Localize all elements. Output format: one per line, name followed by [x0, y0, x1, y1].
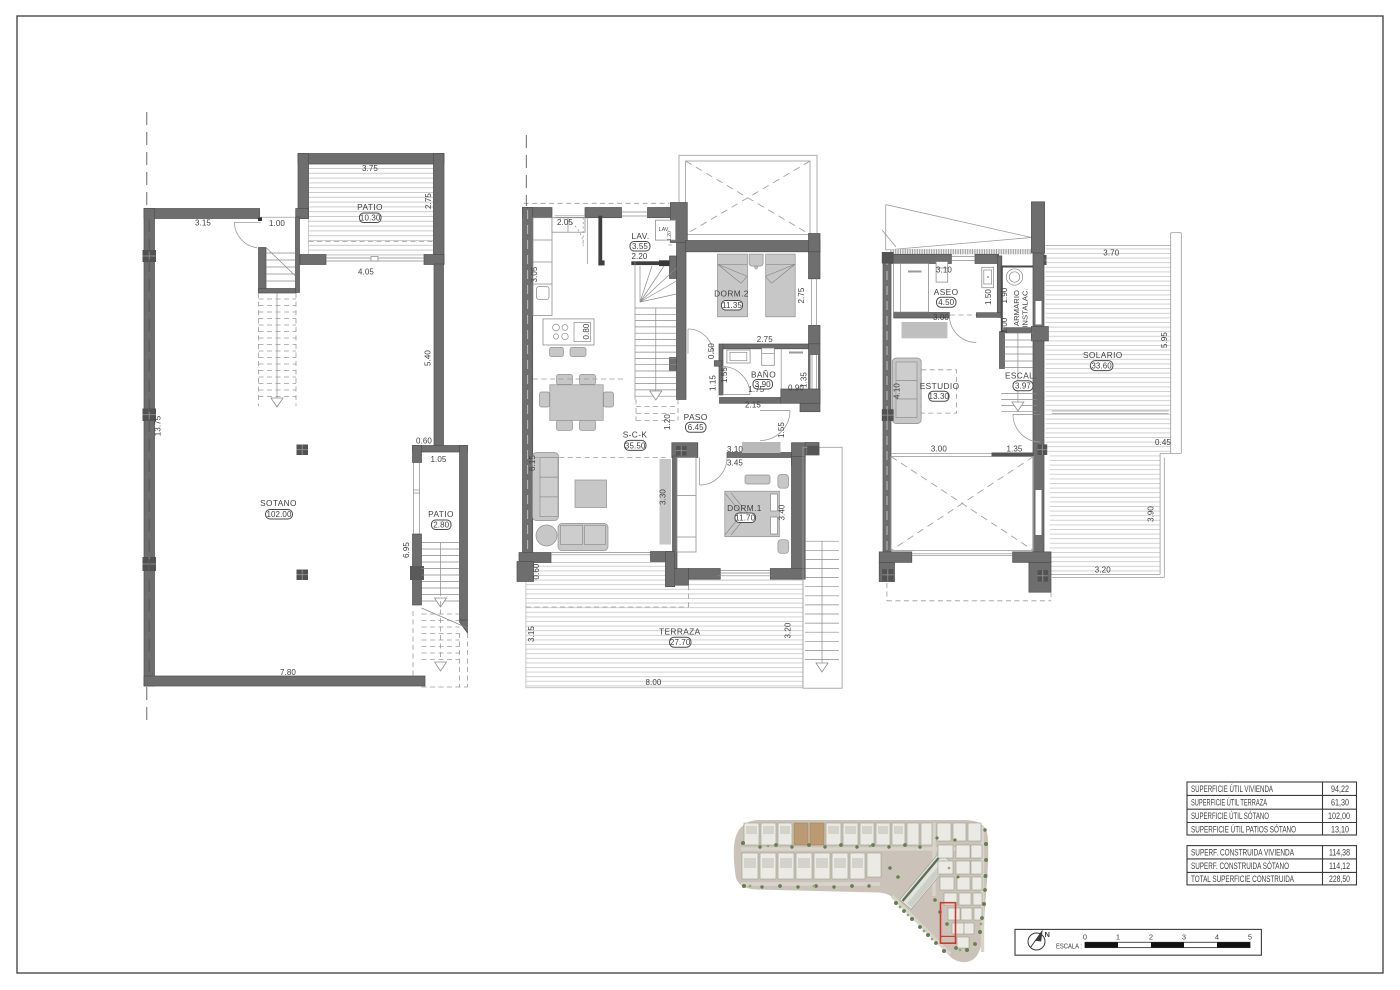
svg-text:0.45: 0.45 [1155, 438, 1171, 447]
svg-text:S-C-K: S-C-K [623, 430, 648, 440]
svg-text:3.45: 3.45 [727, 459, 743, 468]
svg-text:PASO: PASO [684, 412, 708, 422]
svg-text:PATIO: PATIO [428, 509, 454, 519]
svg-text:INSTALAC.: INSTALAC. [1021, 288, 1030, 328]
svg-text:61,30: 61,30 [1331, 798, 1349, 808]
svg-text:0: 0 [1083, 933, 1087, 942]
svg-text:3.40: 3.40 [778, 504, 787, 520]
svg-text:3.00: 3.00 [933, 313, 949, 322]
svg-text:4.50: 4.50 [938, 298, 954, 307]
svg-text:2.20: 2.20 [632, 252, 648, 261]
svg-text:5.40: 5.40 [424, 350, 433, 366]
svg-text:11.35: 11.35 [722, 301, 742, 310]
svg-text:3.75: 3.75 [362, 164, 378, 173]
svg-text:1.50: 1.50 [984, 289, 993, 305]
svg-text:ESTUDIO: ESTUDIO [920, 381, 960, 391]
svg-text:SUPERF. CONSTRUIDA SÓTANO: SUPERF. CONSTRUIDA SÓTANO [1191, 861, 1289, 871]
svg-text:1.75: 1.75 [748, 385, 764, 394]
svg-text:4.05: 4.05 [358, 268, 374, 277]
svg-text:13.30: 13.30 [929, 392, 950, 401]
svg-text:PATIO: PATIO [357, 202, 383, 212]
svg-text:0.80: 0.80 [582, 323, 591, 339]
svg-text:1.20: 1.20 [663, 414, 672, 430]
svg-text:ESCALA :: ESCALA : [1056, 942, 1082, 951]
svg-text:TERRAZA: TERRAZA [659, 627, 701, 637]
svg-text:ASEO: ASEO [934, 287, 959, 297]
svg-text:3.05: 3.05 [530, 266, 539, 282]
svg-text:SUPERFICIE ÚTIL TERRAZA: SUPERFICIE ÚTIL TERRAZA [1191, 798, 1268, 808]
svg-text:3.20: 3.20 [1095, 566, 1111, 575]
svg-text:228,50: 228,50 [1329, 874, 1350, 884]
svg-text:SOLARIO: SOLARIO [1083, 350, 1123, 360]
svg-text:13.75: 13.75 [154, 415, 163, 436]
svg-text:2.75: 2.75 [797, 287, 806, 303]
svg-text:SUPERF. CONSTRUIDA VIVIENDA: SUPERF. CONSTRUIDA VIVIENDA [1191, 847, 1295, 857]
svg-text:6.45: 6.45 [688, 423, 704, 432]
svg-text:7.80: 7.80 [280, 668, 296, 677]
svg-text:33.60: 33.60 [1091, 362, 1112, 371]
svg-text:8.00: 8.00 [646, 678, 662, 687]
svg-text:6.15: 6.15 [528, 455, 537, 471]
svg-text:2.15: 2.15 [745, 401, 761, 410]
svg-text:1.90: 1.90 [1000, 287, 1009, 303]
svg-text:2: 2 [1149, 933, 1153, 942]
svg-text:10.30: 10.30 [360, 214, 381, 223]
svg-text:0.50: 0.50 [707, 343, 716, 359]
svg-text:N: N [1045, 930, 1050, 939]
svg-text:2.75: 2.75 [424, 193, 433, 209]
svg-text:2.75: 2.75 [757, 335, 773, 344]
svg-text:114,12: 114,12 [1329, 861, 1350, 871]
svg-text:DORM.2: DORM.2 [714, 289, 749, 299]
svg-text:5.95: 5.95 [1160, 332, 1169, 348]
svg-text:SUPERFICIE ÚTIL SÓTANO: SUPERFICIE ÚTIL SÓTANO [1191, 811, 1269, 821]
svg-text:3.90: 3.90 [1146, 506, 1155, 522]
svg-text:4.10: 4.10 [892, 383, 901, 399]
svg-text:1: 1 [1116, 933, 1120, 942]
svg-text:3.55: 3.55 [632, 242, 648, 251]
svg-text:SOTANO: SOTANO [260, 498, 297, 508]
svg-text:0.60: 0.60 [416, 437, 432, 446]
svg-text:3.30: 3.30 [659, 489, 668, 505]
svg-text:1.05: 1.05 [431, 455, 447, 464]
svg-text:1.55: 1.55 [777, 422, 786, 438]
svg-text:94,22: 94,22 [1331, 784, 1349, 794]
svg-text:3.70: 3.70 [1103, 249, 1119, 258]
svg-text:3.15: 3.15 [195, 219, 211, 228]
svg-text:1.55: 1.55 [720, 367, 729, 383]
svg-text:TOTAL SUPERFICIE CONSTRUIDA: TOTAL SUPERFICIE CONSTRUIDA [1191, 874, 1295, 884]
svg-text:2.05: 2.05 [557, 218, 573, 227]
svg-text:3: 3 [1182, 933, 1186, 942]
svg-text:ESCAL.: ESCAL. [1005, 371, 1037, 381]
svg-text:27.70: 27.70 [670, 638, 691, 647]
svg-text:DORM.1: DORM.1 [727, 503, 762, 513]
svg-text:3.97: 3.97 [1015, 382, 1031, 391]
svg-text:3.15: 3.15 [527, 626, 536, 642]
svg-text:102,00: 102,00 [1328, 811, 1350, 821]
svg-text:LAV.: LAV. [631, 231, 649, 241]
svg-text:114,38: 114,38 [1329, 847, 1350, 857]
svg-text:3.10: 3.10 [936, 266, 952, 275]
svg-text:0.60: 0.60 [532, 563, 541, 579]
svg-text:SUPERFICIE ÚTIL PATIOS SÓTANO: SUPERFICIE ÚTIL PATIOS SÓTANO [1191, 824, 1296, 834]
svg-text:SUPERFICIE ÚTIL VIVIENDA: SUPERFICIE ÚTIL VIVIENDA [1191, 784, 1274, 794]
svg-text:5: 5 [1248, 933, 1252, 942]
svg-text:1.35: 1.35 [1007, 445, 1023, 454]
svg-text:BAÑO: BAÑO [751, 370, 776, 380]
svg-text:6.95: 6.95 [402, 542, 411, 558]
svg-text:1.00: 1.00 [1000, 317, 1009, 333]
svg-text:4: 4 [1215, 933, 1219, 942]
svg-text:1.20: 1.20 [667, 231, 673, 241]
svg-text:1.35: 1.35 [800, 372, 809, 388]
svg-text:2.80: 2.80 [433, 521, 449, 530]
svg-text:35.50: 35.50 [625, 441, 646, 450]
svg-text:1.00: 1.00 [269, 219, 285, 228]
svg-text:3.00: 3.00 [931, 445, 947, 454]
svg-text:3.20: 3.20 [784, 622, 793, 638]
svg-text:3.10: 3.10 [727, 445, 743, 454]
svg-text:11.70: 11.70 [735, 514, 755, 523]
svg-text:102.00: 102.00 [266, 510, 292, 519]
svg-text:13,10: 13,10 [1331, 824, 1349, 834]
svg-text:1.15: 1.15 [708, 375, 717, 391]
